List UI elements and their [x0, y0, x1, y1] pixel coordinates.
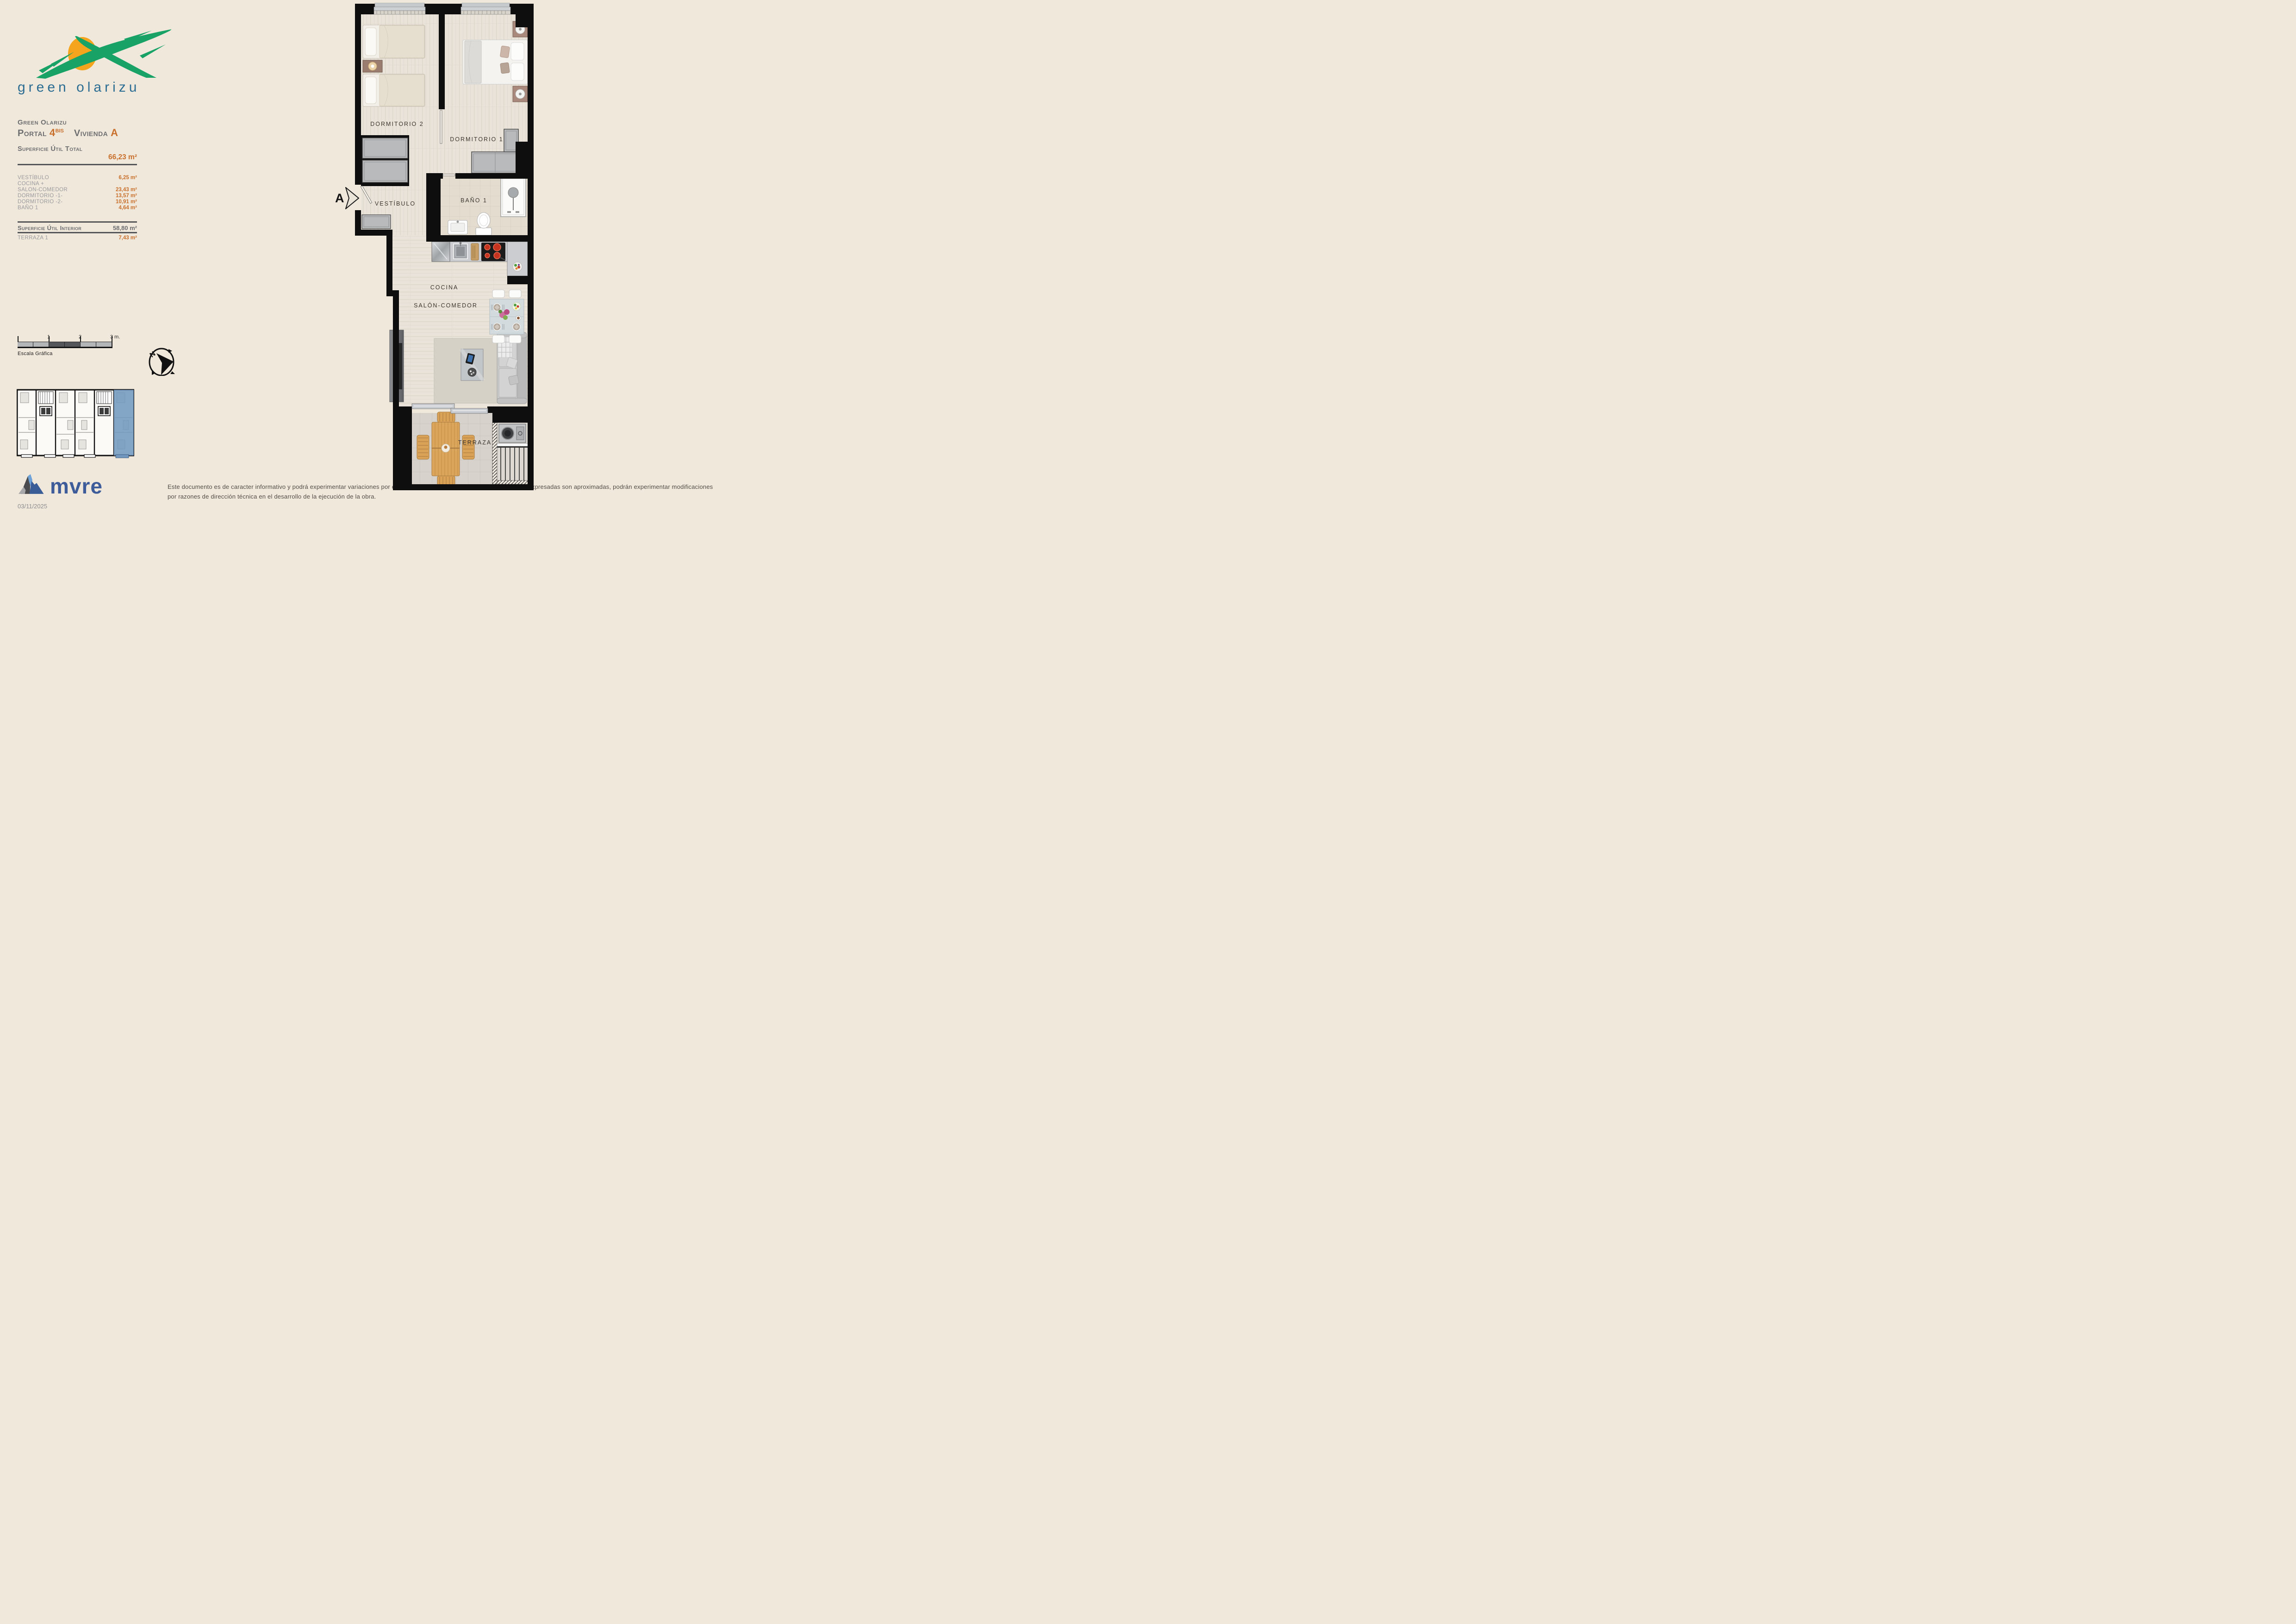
document-date: 03/11/2025 [18, 503, 47, 510]
apartment-floorplan: DORMITORIO 2 DORMITORIO 1 VESTÍBULO BAÑO… [348, 3, 542, 490]
bedroom-door-leaf [440, 110, 442, 144]
project-title: Green Olarizu [18, 119, 67, 126]
surface-row: DORMITORIO -1- 13,57 m² [18, 193, 137, 199]
surface-row: COCINA + [18, 181, 137, 187]
room-label: COCINA + [18, 181, 44, 187]
mvre-logo: mvre [19, 473, 103, 495]
divider-line [18, 232, 137, 233]
room-label: BAÑO 1 [18, 205, 38, 211]
room-value: 4,64 m² [118, 205, 137, 211]
highlighted-unit [114, 390, 134, 456]
label-dormitorio1: DORMITORIO 1 [450, 136, 503, 143]
total-surface-label: Superficie Útil Total [18, 145, 82, 153]
room-value: 13,57 m² [116, 193, 137, 199]
divider-line [18, 164, 137, 165]
portal-label: Portal [18, 128, 47, 138]
terrace-surface-row: TERRAZA 1 7,43 m² [18, 235, 137, 241]
surface-row: SALON-COMEDOR 23,43 m² [18, 187, 137, 193]
room-label: DORMITORIO -1- [18, 193, 62, 199]
hatched-divider [492, 423, 497, 484]
label-cocina: COCINA [430, 284, 459, 291]
label-salon: SALÓN-COMEDOR [414, 302, 478, 309]
divider-line [18, 221, 137, 223]
graphic-scale: 1 2 3 m. Escala Gráfica [18, 334, 129, 360]
interior-surface-row: Superficie Útil Interior 58,80 m² [18, 225, 137, 231]
portal-unit-line: Portal 4BIS Vivienda A [18, 127, 118, 139]
mvre-wordmark: mvre [50, 477, 103, 495]
highlighted-unit-balcony [116, 455, 129, 458]
logo-wordmark: green olarizu [18, 80, 140, 95]
north-compass-icon: N [147, 346, 176, 376]
wardrobe [362, 160, 408, 182]
total-surface-value: 66,23 m² [18, 153, 137, 162]
mvre-mountains-icon [19, 473, 46, 495]
interior-value: 58,80 m² [113, 225, 137, 231]
marker-letter: A [335, 191, 344, 206]
vivienda-label: Vivienda [74, 128, 108, 138]
salad-plate [512, 302, 521, 311]
building-key-plan [17, 388, 134, 458]
compass-needle [156, 353, 174, 375]
surface-row: VESTÍBULO 6,25 m² [18, 175, 137, 181]
vivienda-letter: A [111, 127, 118, 138]
label-dormitorio2: DORMITORIO 2 [370, 121, 423, 127]
cushion [508, 375, 519, 385]
surface-row: DORMITORIO -2- 10,91 m² [18, 199, 137, 205]
room-label: SALON-COMEDOR [18, 187, 68, 193]
label-bano1: BAÑO 1 [460, 197, 487, 204]
interior-label: Superficie Útil Interior [18, 225, 81, 231]
green-olarizu-logo [32, 27, 174, 79]
logo-brush-icon [32, 27, 174, 79]
toilet [476, 212, 492, 235]
terrace-table [432, 422, 460, 476]
stair-core [38, 392, 53, 416]
coffee-table [461, 349, 483, 381]
tv-screen [399, 343, 402, 389]
room-value: 10,91 m² [116, 199, 137, 205]
portal-number: 4 [50, 127, 56, 138]
label-terraza: TERRAZA [458, 439, 492, 446]
room-label: VESTÍBULO [18, 175, 49, 181]
fruit-plate [513, 262, 522, 271]
room-value: 23,43 m² [116, 187, 137, 193]
washing-machine [499, 424, 526, 443]
window-dormitorio1 [461, 3, 510, 14]
terrace-label: TERRAZA 1 [18, 235, 48, 241]
label-vestibulo: VESTÍBULO [375, 200, 416, 207]
terrace-value: 7,43 m² [118, 235, 137, 241]
portal-suffix: BIS [56, 128, 64, 134]
stair-core [97, 392, 112, 416]
surface-row: BAÑO 1 4,64 m² [18, 205, 137, 211]
bath-door-leaf [443, 174, 455, 176]
room-value: 6,25 m² [118, 175, 137, 181]
scale-caption: Escala Gráfica [18, 351, 53, 356]
room-label: DORMITORIO -2- [18, 199, 62, 205]
wardrobe [362, 138, 408, 158]
window-dormitorio2 [374, 3, 425, 14]
